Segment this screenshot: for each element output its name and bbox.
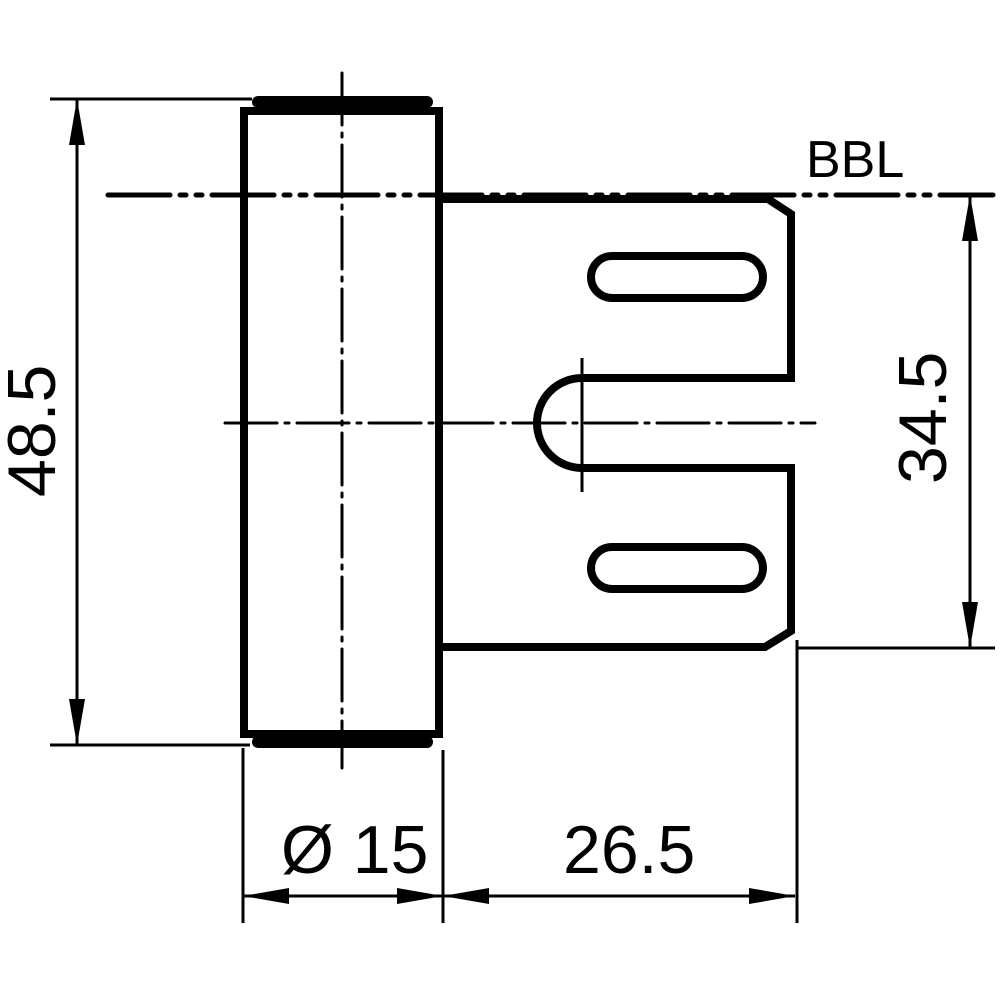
plate-height-value: 34.5 [885, 352, 961, 484]
arrowhead-right-icon [749, 888, 795, 904]
dimension-plate-height: 34.5 [798, 195, 995, 648]
barrel-bottom-cap [252, 736, 433, 748]
barrel-diameter-value: Ø 15 [281, 812, 428, 888]
technical-drawing: 48.5 34.5 Ø 15 26.5 BBL [0, 0, 1000, 1000]
arrowhead-down-icon [962, 602, 978, 648]
barrel-top-cap [252, 96, 433, 108]
arrowhead-up-icon [69, 99, 85, 145]
centerlines [225, 73, 815, 768]
dimension-barrel-diameter: Ø 15 [243, 748, 443, 923]
overall-height-value: 48.5 [0, 365, 70, 497]
screw-slot-top [591, 256, 763, 298]
plate-depth-value: 26.5 [563, 812, 695, 888]
arrowhead-down-icon [69, 699, 85, 745]
screw-slot-bottom [591, 547, 763, 589]
bbl-label: BBL [806, 131, 904, 189]
arrowhead-right-icon [397, 888, 443, 904]
arrowhead-left-icon [443, 888, 489, 904]
arrowhead-up-icon [962, 195, 978, 241]
dimension-plate-depth: 26.5 [443, 640, 797, 923]
arrowhead-left-icon [243, 888, 289, 904]
drawing-canvas: 48.5 34.5 Ø 15 26.5 BBL [0, 0, 1000, 1000]
